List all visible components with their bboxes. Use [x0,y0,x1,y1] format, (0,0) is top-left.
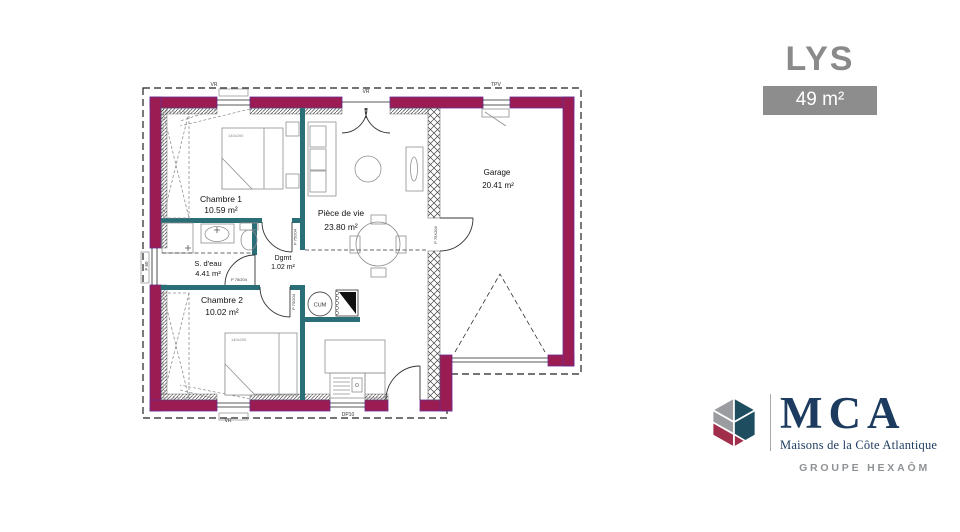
room-area-dgmt: 1.02 m² [271,264,295,271]
room-area-sdeau: 4.41 m² [195,269,221,278]
brand-divider [770,394,771,451]
room-label-chambre2: Chambre 2 [201,295,243,305]
room-label-piecedevie: Pièce de vie [318,208,365,218]
bed2-size-label: 140x200 [231,337,247,342]
bathroom-fixtures [162,223,258,253]
title-block: LYS 49 m² [763,40,877,115]
floor-plan: Chambre 1 10.59 m² S. d'eau 4.41 m² Cham… [138,80,634,432]
interior-walls [161,108,360,400]
exterior-walls [150,97,574,411]
brand-block: MCA Maisons de la Côte Atlantique GROUPE… [706,392,936,482]
room-label-chambre1: Chambre 1 [200,194,242,204]
brand-text: MCA Maisons de la Côte Atlantique GROUPE… [780,392,930,474]
bed1-size-label: 140x200 [228,133,244,138]
room-area-chambre2: 10.02 m² [205,307,239,317]
mca-cube-logo-icon [706,394,762,454]
room-area-chambre1: 10.59 m² [204,205,238,215]
windows [141,89,548,420]
room-area-garage: 20.41 m² [482,181,514,190]
brand-acronym: MCA [780,392,930,435]
page: Chambre 1 10.59 m² S. d'eau 4.41 m² Cham… [0,0,960,532]
garage-window-label: TPV [491,82,501,88]
brand-name: Maisons de la Côte Atlantique [780,438,930,453]
garage-partition-wall [428,108,440,400]
room-area-piecedevie: 23.80 m² [324,222,358,232]
door-label-sdeau: P 75/204 [231,277,248,282]
living-furniture [308,122,423,277]
side-window-label: F 60 [144,261,149,271]
shutter-swings [180,109,250,399]
kitchen-unit [325,340,385,398]
model-name: LYS [763,40,877,79]
brand-group: GROUPE HEXAÔM [780,462,930,474]
zone-dashes [162,250,428,253]
shutter-label-top-left: VR [211,82,218,88]
water-heater-label: CUM [314,303,327,309]
shutter-label-bottom: VR [225,418,232,424]
door-label-chambre2: P 75/204 [291,293,296,310]
room-label-dgmt: Dgmt [275,255,292,262]
door-label-chambre1: P 75/204 [293,228,298,245]
downspout-label: DP10 [342,412,355,418]
area-badge: 49 m² [763,86,877,115]
insulation-lining [161,108,428,400]
room-label-sdeau: S. d'eau [194,259,221,268]
door-label-garage: P 75X204 [433,225,438,243]
garage-door [455,274,545,352]
room-label-garage: Garage [484,168,511,177]
shutter-label-top-center: VR [363,89,370,95]
